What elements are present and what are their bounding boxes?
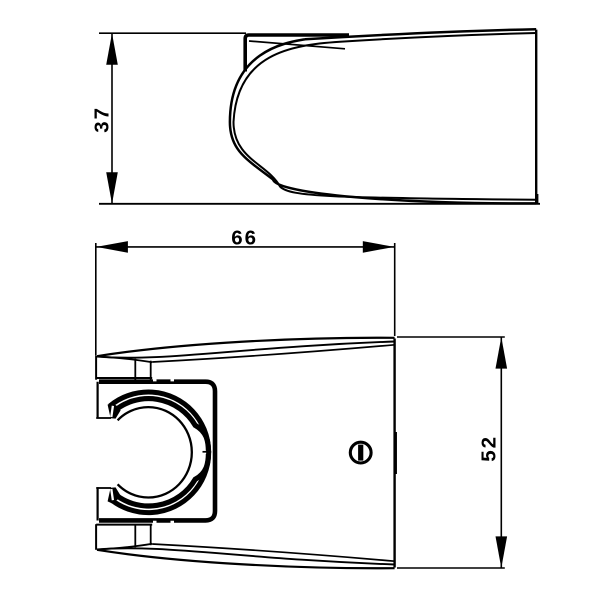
svg-text:37: 37 [90, 106, 113, 133]
svg-text:66: 66 [231, 227, 258, 250]
svg-text:52: 52 [478, 435, 501, 462]
